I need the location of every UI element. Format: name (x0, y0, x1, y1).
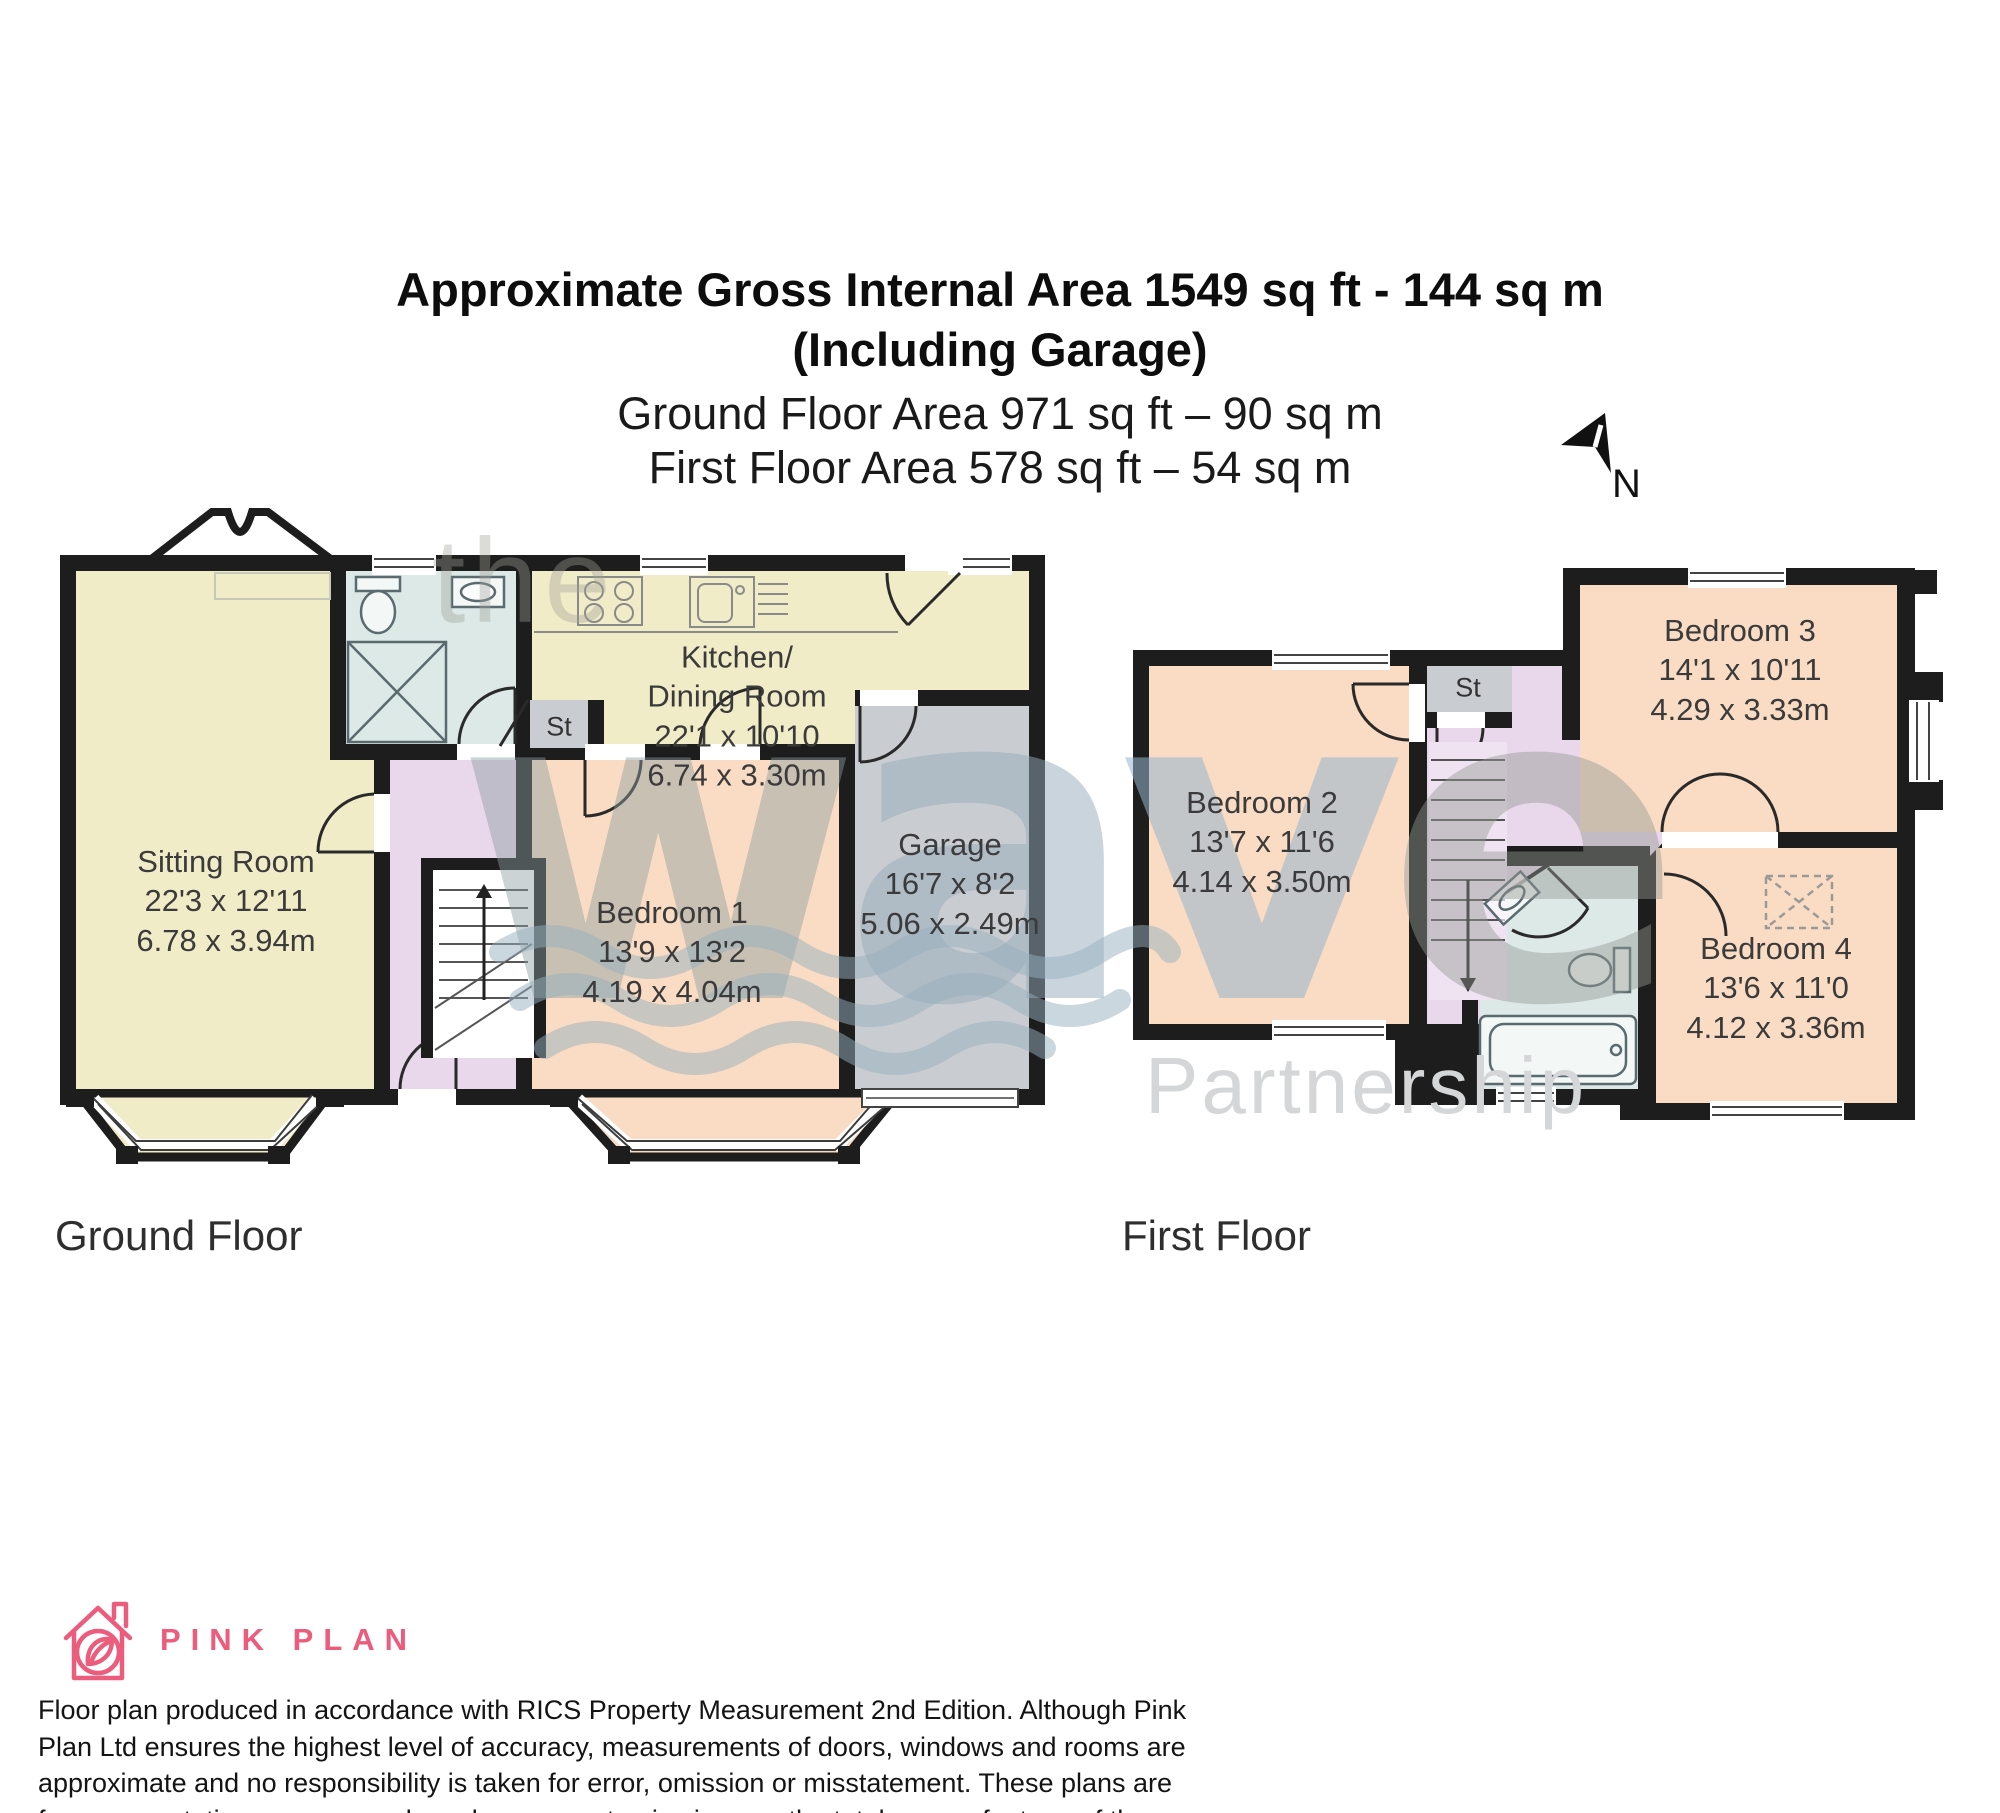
room-size-imperial: 16'7 x 8'2 (860, 864, 1039, 903)
toilet-icon (361, 591, 395, 633)
room-name: Garage (860, 825, 1039, 864)
compass-label: N (1612, 462, 1641, 507)
watermark-partnership: Partnership (1145, 1040, 1587, 1132)
floorplan-page: the wave Approximate Gross Internal (0, 0, 2000, 1813)
room-name: Bedroom 3 (1650, 611, 1829, 650)
bedroom1-label: Bedroom 1 13'9 x 13'2 4.19 x 4.04m (582, 893, 761, 1011)
room-size-imperial: 22'1 x 10'10 (647, 716, 826, 755)
room-name: Kitchen/ (647, 637, 826, 676)
room-size-imperial: 13'7 x 11'6 (1172, 822, 1351, 861)
header-title-line1: Approximate Gross Internal Area 1549 sq … (0, 262, 2000, 317)
room-size-imperial: 14'1 x 10'11 (1650, 650, 1829, 689)
toilet-cistern-icon (356, 577, 400, 591)
room-size-metric: 4.19 x 4.04m (582, 972, 761, 1011)
header-title-line2: (Including Garage) (0, 322, 2000, 377)
room-size-imperial: 22'3 x 12'11 (136, 881, 315, 920)
first-storage-label: St (1455, 673, 1481, 704)
room-size-metric: 6.74 x 3.30m (647, 755, 826, 794)
room-size-metric: 4.14 x 3.50m (1172, 862, 1351, 901)
bedroom4-label: Bedroom 4 13'6 x 11'0 4.12 x 3.36m (1686, 929, 1865, 1047)
room-size-metric: 5.06 x 2.49m (860, 904, 1039, 943)
room-size-metric: 4.29 x 3.33m (1650, 690, 1829, 729)
room-size-metric: 6.78 x 3.94m (136, 921, 315, 960)
ground-storage-label: St (546, 712, 572, 743)
bedroom2-label: Bedroom 2 13'7 x 11'6 4.14 x 3.50m (1172, 783, 1351, 901)
disclaimer-text: Floor plan produced in accordance with R… (38, 1692, 1203, 1813)
sitting-room-area (76, 571, 374, 1089)
watermark-graphics: the wave (432, 514, 1667, 1102)
kitchen-label: Kitchen/ Dining Room 22'1 x 10'10 6.74 x… (647, 637, 826, 794)
bedroom3-label: Bedroom 3 14'1 x 10'11 4.29 x 3.33m (1650, 611, 1829, 729)
pink-plan-logo-icon (66, 1604, 130, 1678)
room-name: Bedroom 4 (1686, 929, 1865, 968)
sitting-room-bay-window (66, 1085, 344, 1164)
room-size-imperial: 13'6 x 11'0 (1686, 968, 1865, 1007)
room-size-metric: 4.12 x 3.36m (1686, 1008, 1865, 1047)
room-size-imperial: 13'9 x 13'2 (582, 932, 761, 971)
sitting-room-label: Sitting Room 22'3 x 12'11 6.78 x 3.94m (136, 842, 315, 960)
room-name: Dining Room (647, 677, 826, 716)
chimney-bay (150, 512, 332, 560)
header-ground-area: Ground Floor Area 971 sq ft – 90 sq m (0, 388, 2000, 440)
brand-name: PINK PLAN (160, 1622, 417, 1658)
ground-floor-label: Ground Floor (55, 1212, 302, 1260)
room-name: Sitting Room (136, 842, 315, 881)
garage-label: Garage 16'7 x 8'2 5.06 x 2.49m (860, 825, 1039, 943)
header-first-area: First Floor Area 578 sq ft – 54 sq m (0, 442, 2000, 494)
room-name: Bedroom 1 (582, 893, 761, 932)
first-floor-label: First Floor (1122, 1212, 1311, 1260)
room-name: Bedroom 2 (1172, 783, 1351, 822)
